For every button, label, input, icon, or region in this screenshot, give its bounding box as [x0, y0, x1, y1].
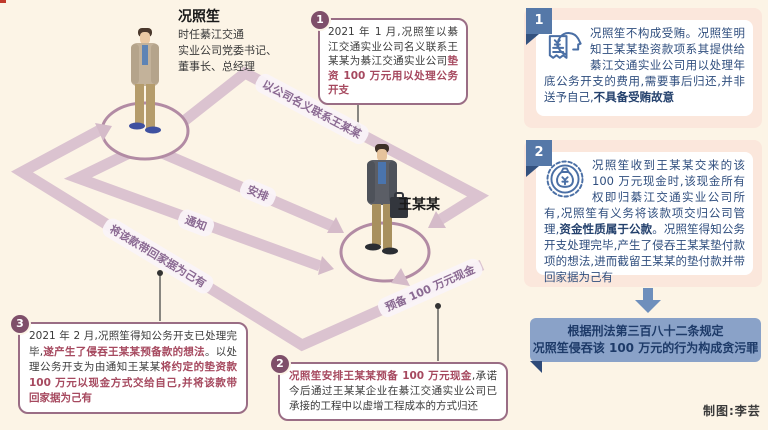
conclusion-box: 根据刑法第三百八十二条规定 况照笙侵吞该 100 万元的行为构成贪污罪 — [530, 318, 761, 362]
conclusion-line-2: 况照笙侵吞该 100 万元的行为构成贪污罪 — [530, 340, 761, 357]
callout-step-2: 2 况照笙安排王某某预备 100 万元现金,承诺今后通过王某某企业在綦江交通实业… — [278, 362, 508, 421]
ruling-panel-1: 1 况照笙不构成受贿。况照笙明知王某某垫资款项系其提供给綦江交通实业公司用以处理… — [524, 8, 762, 128]
flow-diagram: 况照笙 时任綦江交通实业公司党委书记、董事长、总经理 王某某 以公司名义联系王某… — [0, 0, 524, 430]
kuang-desc-label: 时任綦江交通实业公司党委书记、董事长、总经理 — [178, 27, 277, 75]
callout-step-1: 1 2021 年 1 月,况照笙以綦江交通实业公司名义联系王某某为綦江交通实业公… — [318, 18, 468, 105]
ruling-1-number-tab: 1 — [526, 8, 552, 34]
ruling-1-card: 况照笙不构成受贿。况照笙明知王某某垫资款项系其提供给綦江交通实业公司用以处理年底… — [536, 20, 753, 116]
callout-1-text: 2021 年 1 月,况照笙以綦江交通实业公司名义联系王某某为綦江交通实业公司垫… — [328, 26, 458, 96]
callout-2-text: 况照笙安排王某某预备 100 万元现金,承诺今后通过王某某企业在綦江交通实业公司… — [289, 370, 497, 412]
callout-2-number: 2 — [271, 355, 289, 373]
ruling-2-card: 况照笙收到王某某交来的该 100 万元现金时,该现金所有权即归綦江交通实业公司所… — [536, 152, 753, 275]
kuang-platform-circle — [102, 103, 188, 159]
conclusion-line-1: 根据刑法第三百八十二条规定 — [530, 323, 761, 340]
conclusion-arrow-icon — [635, 288, 661, 313]
callout-step-3: 3 2021 年 2 月,况照笙得知公务开支已处理完毕,遂产生了侵吞王某某预备款… — [18, 322, 248, 414]
arrow-into-wang-from-notify — [318, 256, 334, 275]
ruling-2-number-tab: 2 — [526, 140, 552, 166]
kuang-name-label: 况照笙 — [178, 6, 220, 26]
conclusion-fold-corner — [530, 361, 542, 373]
wang-name-label: 王某某 — [398, 194, 440, 214]
callout-1-number: 1 — [311, 11, 329, 29]
graphic-credit: 制图:李芸 — [703, 402, 761, 419]
callout-3-number: 3 — [11, 315, 29, 333]
ruling-panel-2: 2 况照笙收到王某某交来的该 100 万元现金时,该现金所有权即归綦江交通实业公… — [524, 140, 762, 287]
callout-3-text: 2021 年 2 月,况照笙得知公务开支已处理完毕,遂产生了侵吞王某某预备款的想… — [29, 330, 237, 404]
